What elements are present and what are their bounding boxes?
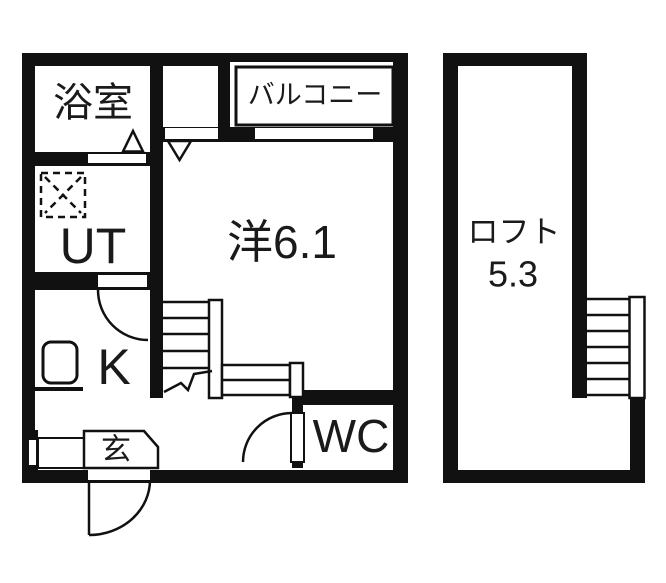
room-label-loft: ロフト [468,215,561,250]
floorplan-drawing: バルコニー [0,0,666,583]
balcony-window-opening [255,128,373,139]
alcove-opening [165,128,218,139]
wc-door-panel [291,413,304,462]
room-label-kitchen: K [97,339,130,395]
ladder-stringer [630,297,645,398]
outer-wall-right [393,53,408,483]
room-label-bathroom: 浴室 [53,81,133,125]
kitchen-sink-icon [43,342,77,383]
outer-wall-bottom [22,470,408,483]
stair-end-cap [290,363,303,397]
kitchen-counter-edge [35,387,83,391]
wall-bathroom-stairs [150,66,163,398]
room-label-utility: UT [60,218,127,274]
room-label-loft-size: 5.3 [488,254,538,295]
wall-above-wc [292,390,408,405]
utility-door-opening [97,274,148,288]
balcony-railing-top [230,53,408,62]
stair-stringer [209,300,222,398]
loft-wall-right-upper [572,53,587,398]
loft-wall-left [443,53,458,483]
loft-wall-top [443,53,587,66]
outer-wall-top [22,53,230,66]
front-door-opening [88,470,150,480]
outer-wall-left [22,53,35,483]
loft-wall-bottom [443,470,645,483]
room-label-balcony: バルコニー [248,80,382,110]
room-label-entrance: 玄 [101,434,131,467]
bathroom-sliding-door [87,153,147,164]
entrance-wall-slot [29,440,36,465]
floorplan-page: バルコニー [0,0,666,583]
room-label-toilet: WC [313,410,390,462]
entrance-step [38,438,84,468]
room-label-western-room: 洋6.1 [227,216,337,268]
